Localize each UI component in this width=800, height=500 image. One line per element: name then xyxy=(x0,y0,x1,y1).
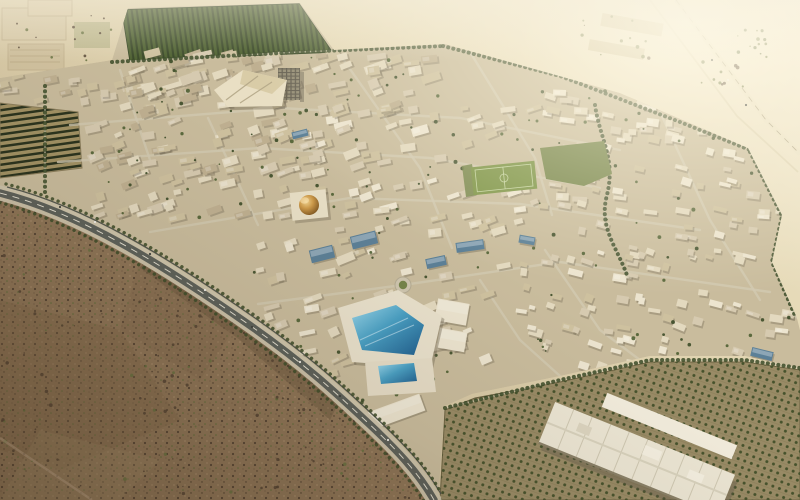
horizon-haze xyxy=(0,0,800,62)
scene-svg xyxy=(0,0,800,500)
aerial-city-render: Aerial rendering of a desert eco-city ma… xyxy=(0,0,800,500)
southwest-shade xyxy=(0,0,800,500)
